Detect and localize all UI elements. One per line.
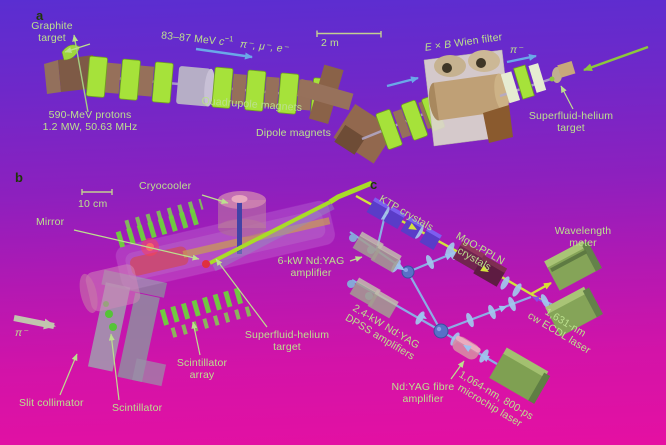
label-scale-10cm: 10 cm [78, 198, 107, 210]
pion-beam-arrow [14, 318, 54, 326]
wien-filter [424, 50, 513, 146]
panel-letter-c: c [370, 177, 377, 192]
slit-leader [60, 354, 77, 395]
beam-direction-arrow-2 [387, 78, 418, 86]
label-mirror: Mirror [36, 216, 64, 228]
label-slit-collimator: Slit collimator [19, 397, 84, 409]
beam-junction-2 [434, 324, 448, 338]
label-cryocooler: Cryocooler [139, 180, 191, 192]
label-scintillator: Scintillator [112, 402, 162, 414]
label-scintillator-array: Scintillator array [168, 357, 236, 382]
label-graphite-target: Graphite target [14, 20, 90, 45]
beamline-a [44, 31, 648, 167]
label-protons: 590-MeV protons 1.2 MW, 50.63 MHz [28, 109, 152, 134]
panel-letter-b: b [15, 170, 23, 185]
beam-junction-1-highlight [404, 268, 408, 272]
label-she-target-a: Superfluid-helium target [518, 110, 624, 135]
she-target-a [550, 61, 576, 83]
label-scale-2m: 2 m [321, 37, 339, 49]
figure: a Graphite target 83–87 MeV c−1π⁻, μ⁻, e… [0, 0, 666, 445]
figure-canvas [0, 0, 666, 445]
momentum-sup: −1 [224, 34, 234, 44]
beam-direction-arrow-3 [507, 56, 536, 62]
incoming-laser-arrow [584, 47, 648, 70]
label-wavelength-meter: Wavelength meter [544, 225, 622, 250]
label-pion-b: π⁻ [15, 327, 28, 339]
mirror [202, 260, 210, 268]
beam-junction-2-highlight [437, 327, 441, 331]
scale-bar-10cm [82, 189, 112, 195]
label-amplifier-6kw: 6-kW Nd:YAG amplifier [270, 255, 352, 280]
amplifier-6kw [349, 231, 402, 272]
label-she-target-b: Superfluid-helium target [228, 329, 346, 354]
she-a-leader [561, 86, 573, 109]
label-pion-a: π⁻ [510, 44, 523, 56]
beam-junction-1 [402, 266, 414, 278]
label-dipole: Dipole magnets [256, 127, 331, 139]
